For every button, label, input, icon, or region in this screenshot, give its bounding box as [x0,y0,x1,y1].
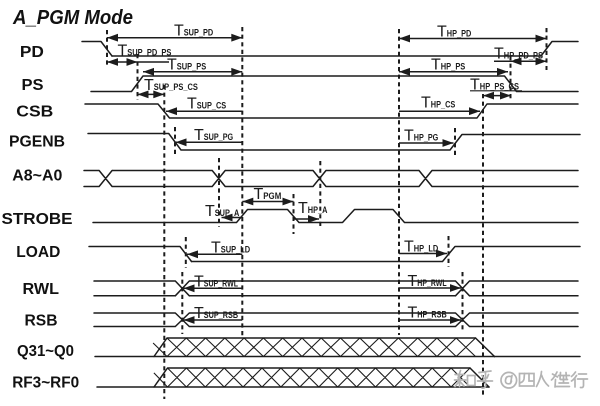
svg-text:PS: PS [22,77,44,94]
svg-text:RF3~RF0: RF3~RF0 [12,375,79,392]
svg-text:PGENB: PGENB [9,133,65,150]
svg-text:LOAD: LOAD [16,244,60,261]
svg-text:PD: PD [20,44,44,61]
svg-text:Q31~Q0: Q31~Q0 [17,343,74,360]
svg-text:A_PGM Mode: A_PGM Mode [12,7,133,29]
svg-text:A8~A0: A8~A0 [12,168,62,185]
svg-text:STROBE: STROBE [2,211,73,228]
svg-text:RWL: RWL [23,281,60,298]
svg-text:CSB: CSB [16,103,53,120]
svg-text:RSB: RSB [25,313,58,330]
